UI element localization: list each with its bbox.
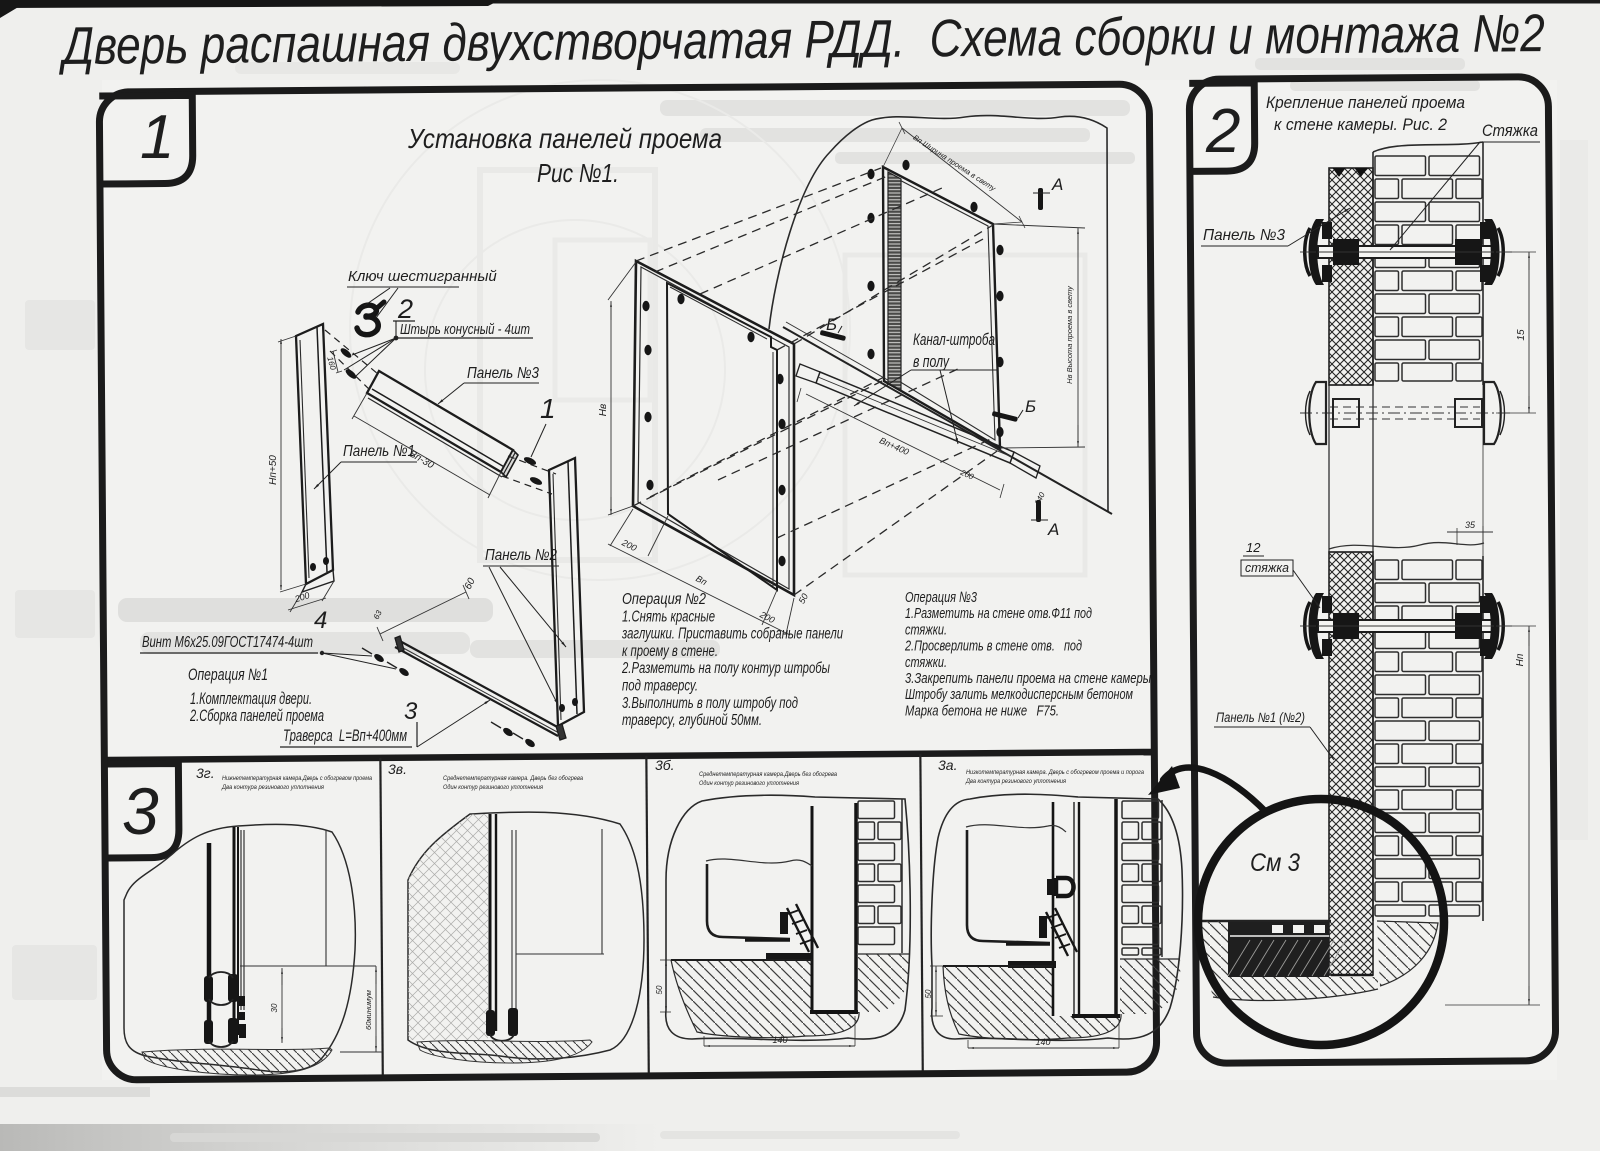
svg-text:стяжки.: стяжки. — [905, 621, 947, 638]
svg-text:Один контур резинового уплотне: Один контур резинового уплотнения — [443, 783, 543, 791]
svg-text:2.Разметить на полу контур штр: 2.Разметить на полу контур штробы — [621, 660, 830, 677]
svg-text:Панель №3: Панель №3 — [1203, 227, 1285, 244]
svg-text:Канал-штроба: Канал-штроба — [913, 330, 995, 349]
svg-text:Нп+50: Нп+50 — [268, 455, 279, 485]
svg-text:Траверса L=Вп+400мм: Траверса L=Вп+400мм — [283, 727, 407, 745]
svg-text:Нв Высота проема в свету: Нв Высота проема в свету — [1065, 285, 1074, 384]
svg-text:Два контура резинового уплотне: Два контура резинового уплотнения — [221, 784, 324, 791]
svg-text:к проему в стене.: к проему в стене. — [622, 643, 718, 660]
svg-text:Среднетемпературная камера.Две: Среднетемпературная камера.Дверь без обо… — [699, 770, 837, 778]
svg-text:1: 1 — [140, 103, 174, 172]
svg-text:3: 3 — [122, 774, 159, 848]
svg-text:А: А — [1051, 175, 1063, 194]
svg-text:3б.: 3б. — [655, 757, 675, 773]
svg-text:60минимум: 60минимум — [364, 990, 373, 1030]
svg-text:1.Разметить на стене отв.Ф11 п: 1.Разметить на стене отв.Ф11 под — [905, 605, 1092, 622]
svg-text:под траверсу.: под траверсу. — [622, 678, 698, 695]
svg-text:Операция №2: Операция №2 — [622, 591, 706, 608]
svg-text:140: 140 — [1035, 1037, 1050, 1047]
svg-text:35: 35 — [1465, 520, 1476, 530]
svg-text:30: 30 — [270, 1003, 279, 1012]
svg-text:12: 12 — [1246, 540, 1261, 555]
svg-text:заглушки. Приставить собраные: заглушки. Приставить собраные панели — [621, 626, 843, 643]
svg-text:к стене камеры. Рис. 2: к стене камеры. Рис. 2 — [1274, 115, 1448, 134]
svg-text:Б: Б — [1025, 397, 1036, 416]
svg-text:стяжки.: стяжки. — [905, 654, 947, 671]
svg-text:Нп: Нп — [1515, 653, 1526, 666]
svg-text:в полу: в полу — [913, 352, 950, 371]
svg-text:3: 3 — [404, 698, 418, 725]
svg-text:2: 2 — [1205, 97, 1240, 166]
svg-text:Стяжка: Стяжка — [1482, 121, 1538, 140]
svg-text:2.Просверлить в стене отв. п: 2.Просверлить в стене отв. под — [904, 638, 1082, 655]
svg-text:2: 2 — [397, 294, 413, 324]
svg-text:Низкотемпературная камера. Две: Низкотемпературная камера. Дверь с обогр… — [966, 768, 1144, 776]
svg-text:15: 15 — [1516, 329, 1527, 341]
svg-text:2.Сборка панелей проема: 2.Сборка панелей проема — [189, 707, 324, 725]
svg-text:Панель №2: Панель №2 — [485, 547, 557, 564]
svg-text:Б: Б — [826, 315, 837, 334]
svg-text:4: 4 — [314, 607, 327, 634]
svg-text:Ключ шестигранный: Ключ шестигранный — [348, 268, 497, 285]
svg-text:3в.: 3в. — [388, 761, 407, 777]
svg-text:А: А — [1047, 520, 1059, 539]
svg-text:3.Выполнить в полу штробу под: 3.Выполнить в полу штробу под — [622, 695, 798, 712]
svg-text:50: 50 — [655, 985, 664, 994]
svg-text:Крепление панелей проема: Крепление панелей проема — [1266, 93, 1465, 112]
svg-text:Панель №3: Панель №3 — [467, 365, 539, 382]
svg-text:3г.: 3г. — [196, 765, 215, 781]
svg-text:Один контур резинового уплотне: Один контур резинового уплотнения — [699, 779, 799, 787]
svg-text:Операция №1: Операция №1 — [188, 666, 268, 684]
svg-text:Операция №3: Операция №3 — [905, 589, 977, 606]
svg-text:Нижнетемпературная камера.Двер: Нижнетемпературная камера.Дверь с обогре… — [222, 774, 372, 782]
svg-text:Два контура резинового уплотне: Два контура резинового уплотнения — [965, 778, 1066, 785]
svg-text:Штробу залить мелкодисперсным: Штробу залить мелкодисперсным бетоном — [905, 686, 1133, 703]
svg-text:140: 140 — [772, 1035, 787, 1045]
svg-text:Панель №1: Панель №1 — [343, 443, 415, 460]
svg-text:См 3: См 3 — [1250, 849, 1300, 877]
svg-text:3.Закрепить панели проема на с: 3.Закрепить панели проема на стене камер… — [905, 670, 1151, 687]
svg-text:Нв: Нв — [598, 404, 609, 416]
svg-text:стяжка: стяжка — [1245, 560, 1289, 575]
svg-text:Винт М6х25.09ГОСТ17474-4шт: Винт М6х25.09ГОСТ17474-4шт — [142, 634, 313, 651]
svg-text:Панель №1 (№2): Панель №1 (№2) — [1216, 710, 1305, 725]
svg-text:50: 50 — [924, 989, 933, 998]
svg-text:Рис №1.: Рис №1. — [537, 158, 619, 188]
svg-text:Штырь конусный - 4шт: Штырь конусный - 4шт — [400, 321, 530, 338]
svg-text:траверсу, глубиной 50мм.: траверсу, глубиной 50мм. — [622, 712, 762, 729]
svg-text:Марка бетона не ниже F75.: Марка бетона не ниже F75. — [905, 702, 1059, 719]
svg-text:1.Снять красные: 1.Снять красные — [622, 608, 715, 625]
svg-text:1: 1 — [540, 393, 556, 424]
svg-text:1.Комплектация двери.: 1.Комплектация двери. — [190, 690, 312, 708]
svg-text:3а.: 3а. — [938, 757, 957, 773]
svg-text:Среднетемпературная камера. Дв: Среднетемпературная камера. Дверь без об… — [443, 774, 583, 782]
svg-text:Установка панелей проема: Установка панелей проема — [407, 123, 722, 154]
